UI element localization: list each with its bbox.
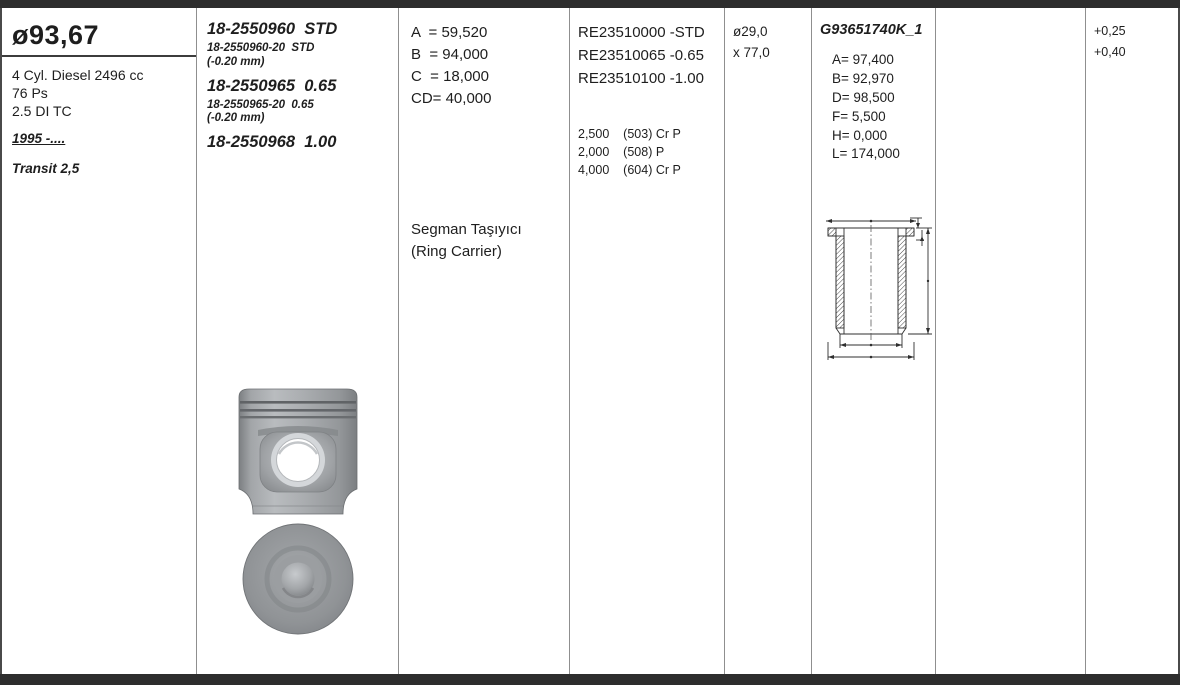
- liner-dim-d: D= 98,500: [832, 89, 935, 108]
- column-liner: G93651740K_1 A= 97,400 B= 92,970 D= 98,5…: [812, 8, 936, 674]
- ring-set-list: RE23510000 -STD RE23510065 -0.65 RE23510…: [570, 8, 724, 179]
- vehicle-model: Transit 2,5: [12, 160, 186, 178]
- piston-number-065-20-note: (-0.20 mm): [207, 112, 398, 126]
- piston-number-065: 18-2550965 0.65: [207, 77, 398, 96]
- dimension-b: B = 94,000: [411, 46, 569, 63]
- piston-number-std-20: 18-2550960-20 STD: [207, 42, 398, 56]
- piston-number-list: 18-2550960 STD 18-2550960-20 STD (-0.20 …: [197, 8, 398, 152]
- pin-diameter: ø29,0: [733, 22, 811, 43]
- cylinder-liner-drawing: [820, 216, 938, 368]
- piston-number-100: 18-2550968 1.00: [207, 133, 398, 152]
- engine-spec: 2.5 DI TC: [12, 102, 186, 120]
- ring-detail-2: 2,000 (508) P: [578, 143, 724, 161]
- piston-side-and-top-view-image: [238, 386, 358, 636]
- liner-code: G93651740K_1: [820, 22, 935, 38]
- piston-number-std: 18-2550960 STD: [207, 20, 398, 39]
- liner-dim-b: B= 92,970: [832, 70, 935, 89]
- top-border-bar: [0, 0, 1180, 8]
- column-engine-info: ø93,67 4 Cyl. Diesel 2496 cc 76 Ps 2.5 D…: [2, 8, 197, 674]
- bottom-border-bar: [0, 674, 1180, 685]
- dimension-c: C = 18,000: [411, 68, 569, 85]
- production-years: 1995 -....: [12, 130, 186, 148]
- engine-specs: 4 Cyl. Diesel 2496 cc 76 Ps 2.5 DI TC 19…: [2, 57, 196, 178]
- ring-set-065: RE23510065 -0.65: [578, 47, 724, 64]
- column-piston-dimensions: A = 59,520 B = 94,000 C = 18,000 CD= 40,…: [399, 8, 570, 674]
- catalog-row: ø93,67 4 Cyl. Diesel 2496 cc 76 Ps 2.5 D…: [0, 8, 1180, 674]
- dimension-cd: CD= 40,000: [411, 90, 569, 107]
- oversize-040: +0,40: [1094, 42, 1178, 63]
- liner-dim-a: A= 97,400: [832, 51, 935, 70]
- engine-description: 4 Cyl. Diesel 2496 cc: [12, 66, 186, 84]
- oversize-list: +0,25 +0,40: [1086, 8, 1178, 64]
- ring-carrier-note-en: (Ring Carrier): [411, 241, 569, 263]
- column-oversizes: +0,25 +0,40: [1086, 8, 1178, 674]
- pin-length: x 77,0: [733, 43, 811, 64]
- liner-dim-f: F= 5,500: [832, 108, 935, 127]
- liner-info: G93651740K_1 A= 97,400 B= 92,970 D= 98,5…: [812, 8, 935, 368]
- ring-carrier-note-tr: Segman Taşıyıcı: [411, 219, 569, 241]
- column-piston-numbers: 18-2550960 STD 18-2550960-20 STD (-0.20 …: [197, 8, 399, 674]
- dimension-a: A = 59,520: [411, 24, 569, 41]
- ring-detail-3: 4,000 (604) Cr P: [578, 161, 724, 179]
- pin-size: ø29,0 x 77,0: [725, 8, 811, 64]
- liner-dim-l: L= 174,000: [832, 145, 935, 164]
- liner-dim-h: H= 0,000: [832, 127, 935, 146]
- catalog-page: ø93,67 4 Cyl. Diesel 2496 cc 76 Ps 2.5 D…: [0, 0, 1180, 685]
- piston-dimension-list: A = 59,520 B = 94,000 C = 18,000 CD= 40,…: [399, 8, 569, 263]
- piston-number-std-20-note: (-0.20 mm): [207, 56, 398, 70]
- piston-photo: [238, 386, 358, 641]
- ring-set-std: RE23510000 -STD: [578, 24, 724, 41]
- column-ring-sets: RE23510000 -STD RE23510065 -0.65 RE23510…: [570, 8, 725, 674]
- piston-number-065-20: 18-2550965-20 0.65: [207, 99, 398, 113]
- ring-set-100: RE23510100 -1.00: [578, 70, 724, 87]
- ring-detail-1: 2,500 (503) Cr P: [578, 125, 724, 143]
- bore-diameter: ø93,67: [2, 8, 196, 57]
- ring-detail-rows: 2,500 (503) Cr P 2,000 (508) P 4,000 (60…: [578, 125, 724, 179]
- column-empty: [936, 8, 1086, 674]
- engine-power: 76 Ps: [12, 84, 186, 102]
- column-pin: ø29,0 x 77,0: [725, 8, 812, 674]
- ring-carrier-note: Segman Taşıyıcı (Ring Carrier): [411, 219, 569, 263]
- oversize-025: +0,25: [1094, 21, 1178, 42]
- liner-dimension-list: A= 97,400 B= 92,970 D= 98,500 F= 5,500 H…: [832, 51, 935, 164]
